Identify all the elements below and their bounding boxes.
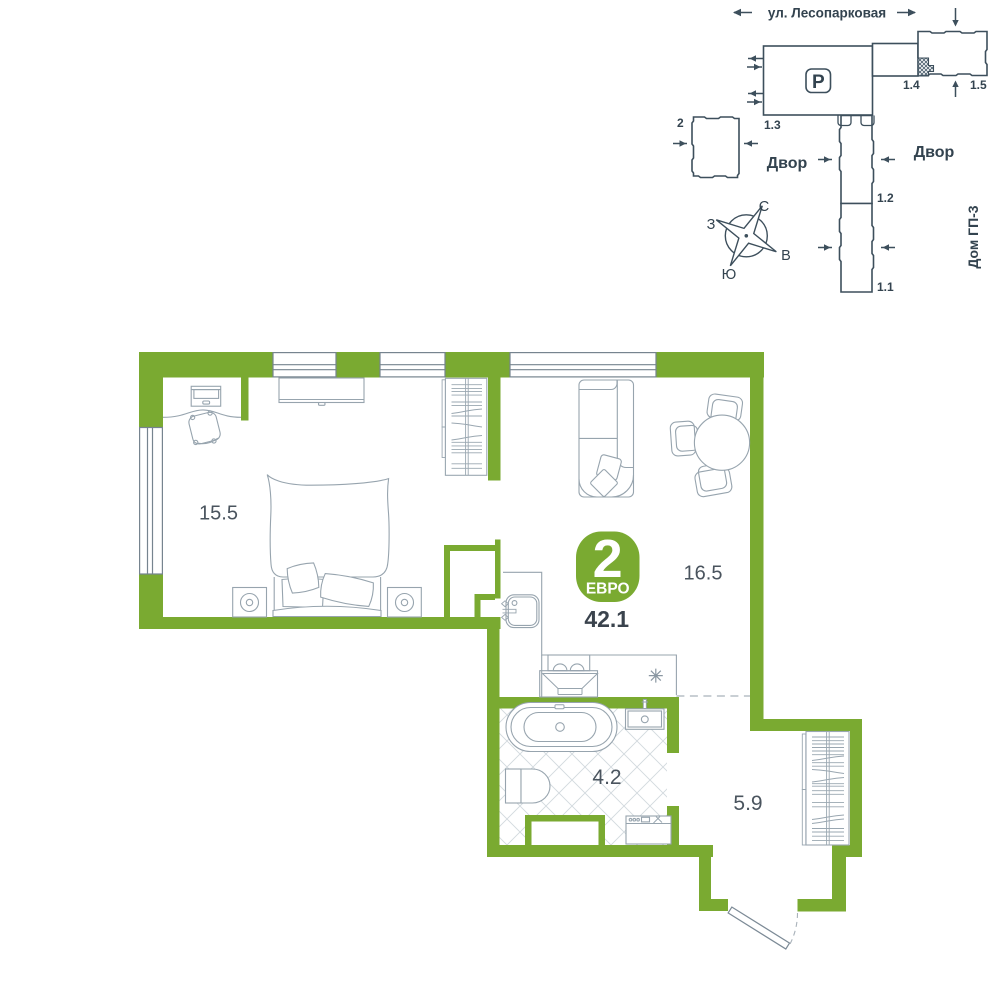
svg-text:15.5: 15.5	[199, 503, 238, 525]
svg-text:Двор: Двор	[767, 155, 808, 172]
svg-text:Дом ГП-3: Дом ГП-3	[965, 205, 981, 268]
svg-text:1.5: 1.5	[970, 78, 987, 92]
svg-text:2: 2	[677, 116, 684, 130]
svg-text:1.4: 1.4	[903, 78, 920, 92]
svg-text:Двор: Двор	[914, 144, 955, 161]
svg-text:1.1: 1.1	[877, 280, 894, 294]
svg-text:16.5: 16.5	[684, 563, 723, 585]
svg-text:С: С	[759, 199, 769, 215]
svg-text:5.9: 5.9	[733, 792, 762, 815]
svg-text:42.1: 42.1	[584, 606, 629, 632]
svg-text:Ю: Ю	[722, 267, 737, 283]
svg-text:1.3: 1.3	[764, 118, 781, 132]
svg-text:1.2: 1.2	[877, 191, 894, 205]
svg-text:З: З	[707, 217, 716, 233]
svg-text:ул. Лесопарковая: ул. Лесопарковая	[768, 6, 886, 21]
svg-text:4.2: 4.2	[592, 766, 621, 789]
svg-text:ЕВРО: ЕВРО	[586, 581, 630, 598]
svg-text:В: В	[781, 248, 791, 264]
svg-text:Р: Р	[812, 72, 825, 93]
